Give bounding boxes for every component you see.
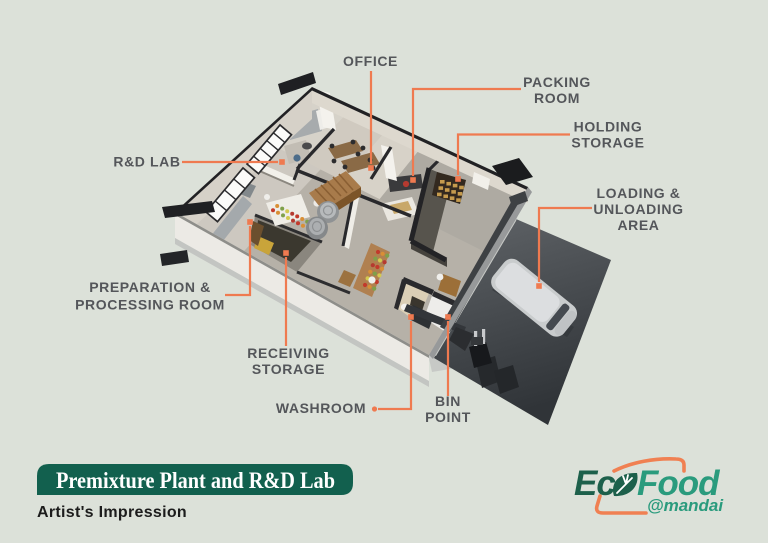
svg-text:Ec: Ec (574, 464, 615, 503)
svg-text:Artist's Impression: Artist's Impression (37, 504, 187, 521)
svg-text:POINT: POINT (425, 409, 471, 425)
svg-text:Premixture Plant and R&D Lab: Premixture Plant and R&D Lab (56, 468, 335, 493)
svg-text:ROOM: ROOM (534, 90, 580, 106)
svg-text:AREA: AREA (617, 217, 659, 233)
svg-text:STORAGE: STORAGE (571, 135, 644, 151)
svg-text:@mandai: @mandai (647, 496, 724, 515)
svg-text:PREPARATION &: PREPARATION & (89, 279, 211, 295)
svg-text:RECEIVING: RECEIVING (247, 345, 329, 361)
svg-text:PACKING: PACKING (523, 74, 591, 90)
svg-text:OFFICE: OFFICE (343, 53, 398, 69)
svg-text:STORAGE: STORAGE (252, 361, 325, 377)
svg-text:WASHROOM: WASHROOM (276, 400, 366, 416)
svg-text:UNLOADING: UNLOADING (593, 201, 683, 217)
svg-text:LOADING &: LOADING & (597, 185, 681, 201)
svg-text:PROCESSING ROOM: PROCESSING ROOM (75, 297, 225, 313)
svg-text:R&D LAB: R&D LAB (113, 154, 180, 170)
svg-text:HOLDING: HOLDING (574, 119, 643, 135)
